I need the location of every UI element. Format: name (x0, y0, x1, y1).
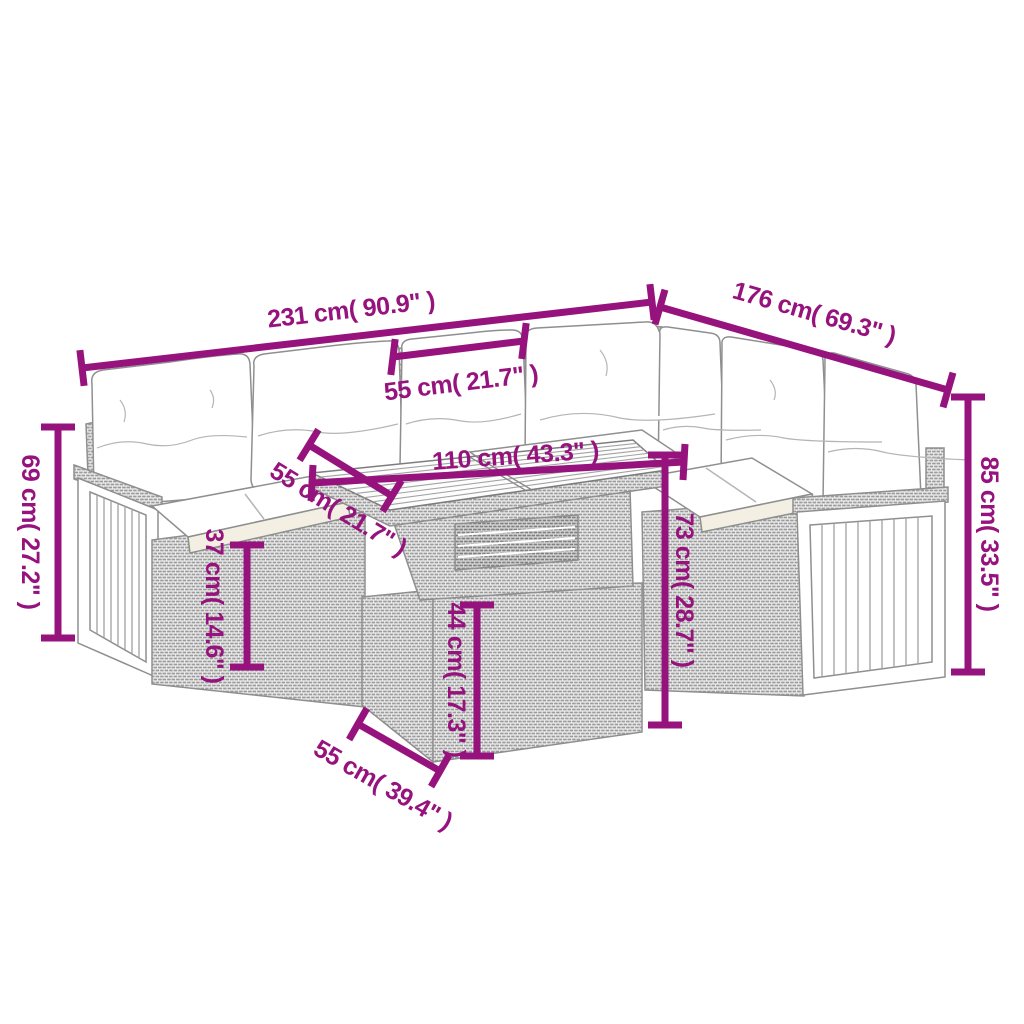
table-height-label: 73 cm( 28.7" ) (670, 513, 698, 668)
dimension-arm-height: 69 cm( 27.2" ) (16, 427, 75, 638)
table-shelf-recess (455, 515, 578, 570)
seat-height-label: 37 cm( 14.6" ) (200, 529, 228, 684)
arm-height-label: 69 cm( 27.2" ) (16, 455, 44, 610)
left-armrest (74, 465, 162, 678)
right-armrest (793, 487, 948, 695)
dimension-back-height: 85 cm( 33.5" ) (951, 397, 1003, 672)
right-depth-label: 176 cm( 69.3" ) (729, 277, 899, 351)
back-height-label: 85 cm( 33.5" ) (975, 457, 1003, 612)
product-dimension-diagram: 231 cm( 90.9" ) 176 cm( 69.3" ) 55 cm( 2… (0, 0, 1024, 1024)
diagram-canvas: 231 cm( 90.9" ) 176 cm( 69.3" ) 55 cm( 2… (0, 0, 1024, 1024)
left-wing-base (152, 512, 365, 707)
table-lower-height-label: 44 cm( 17.3" ) (442, 603, 470, 758)
